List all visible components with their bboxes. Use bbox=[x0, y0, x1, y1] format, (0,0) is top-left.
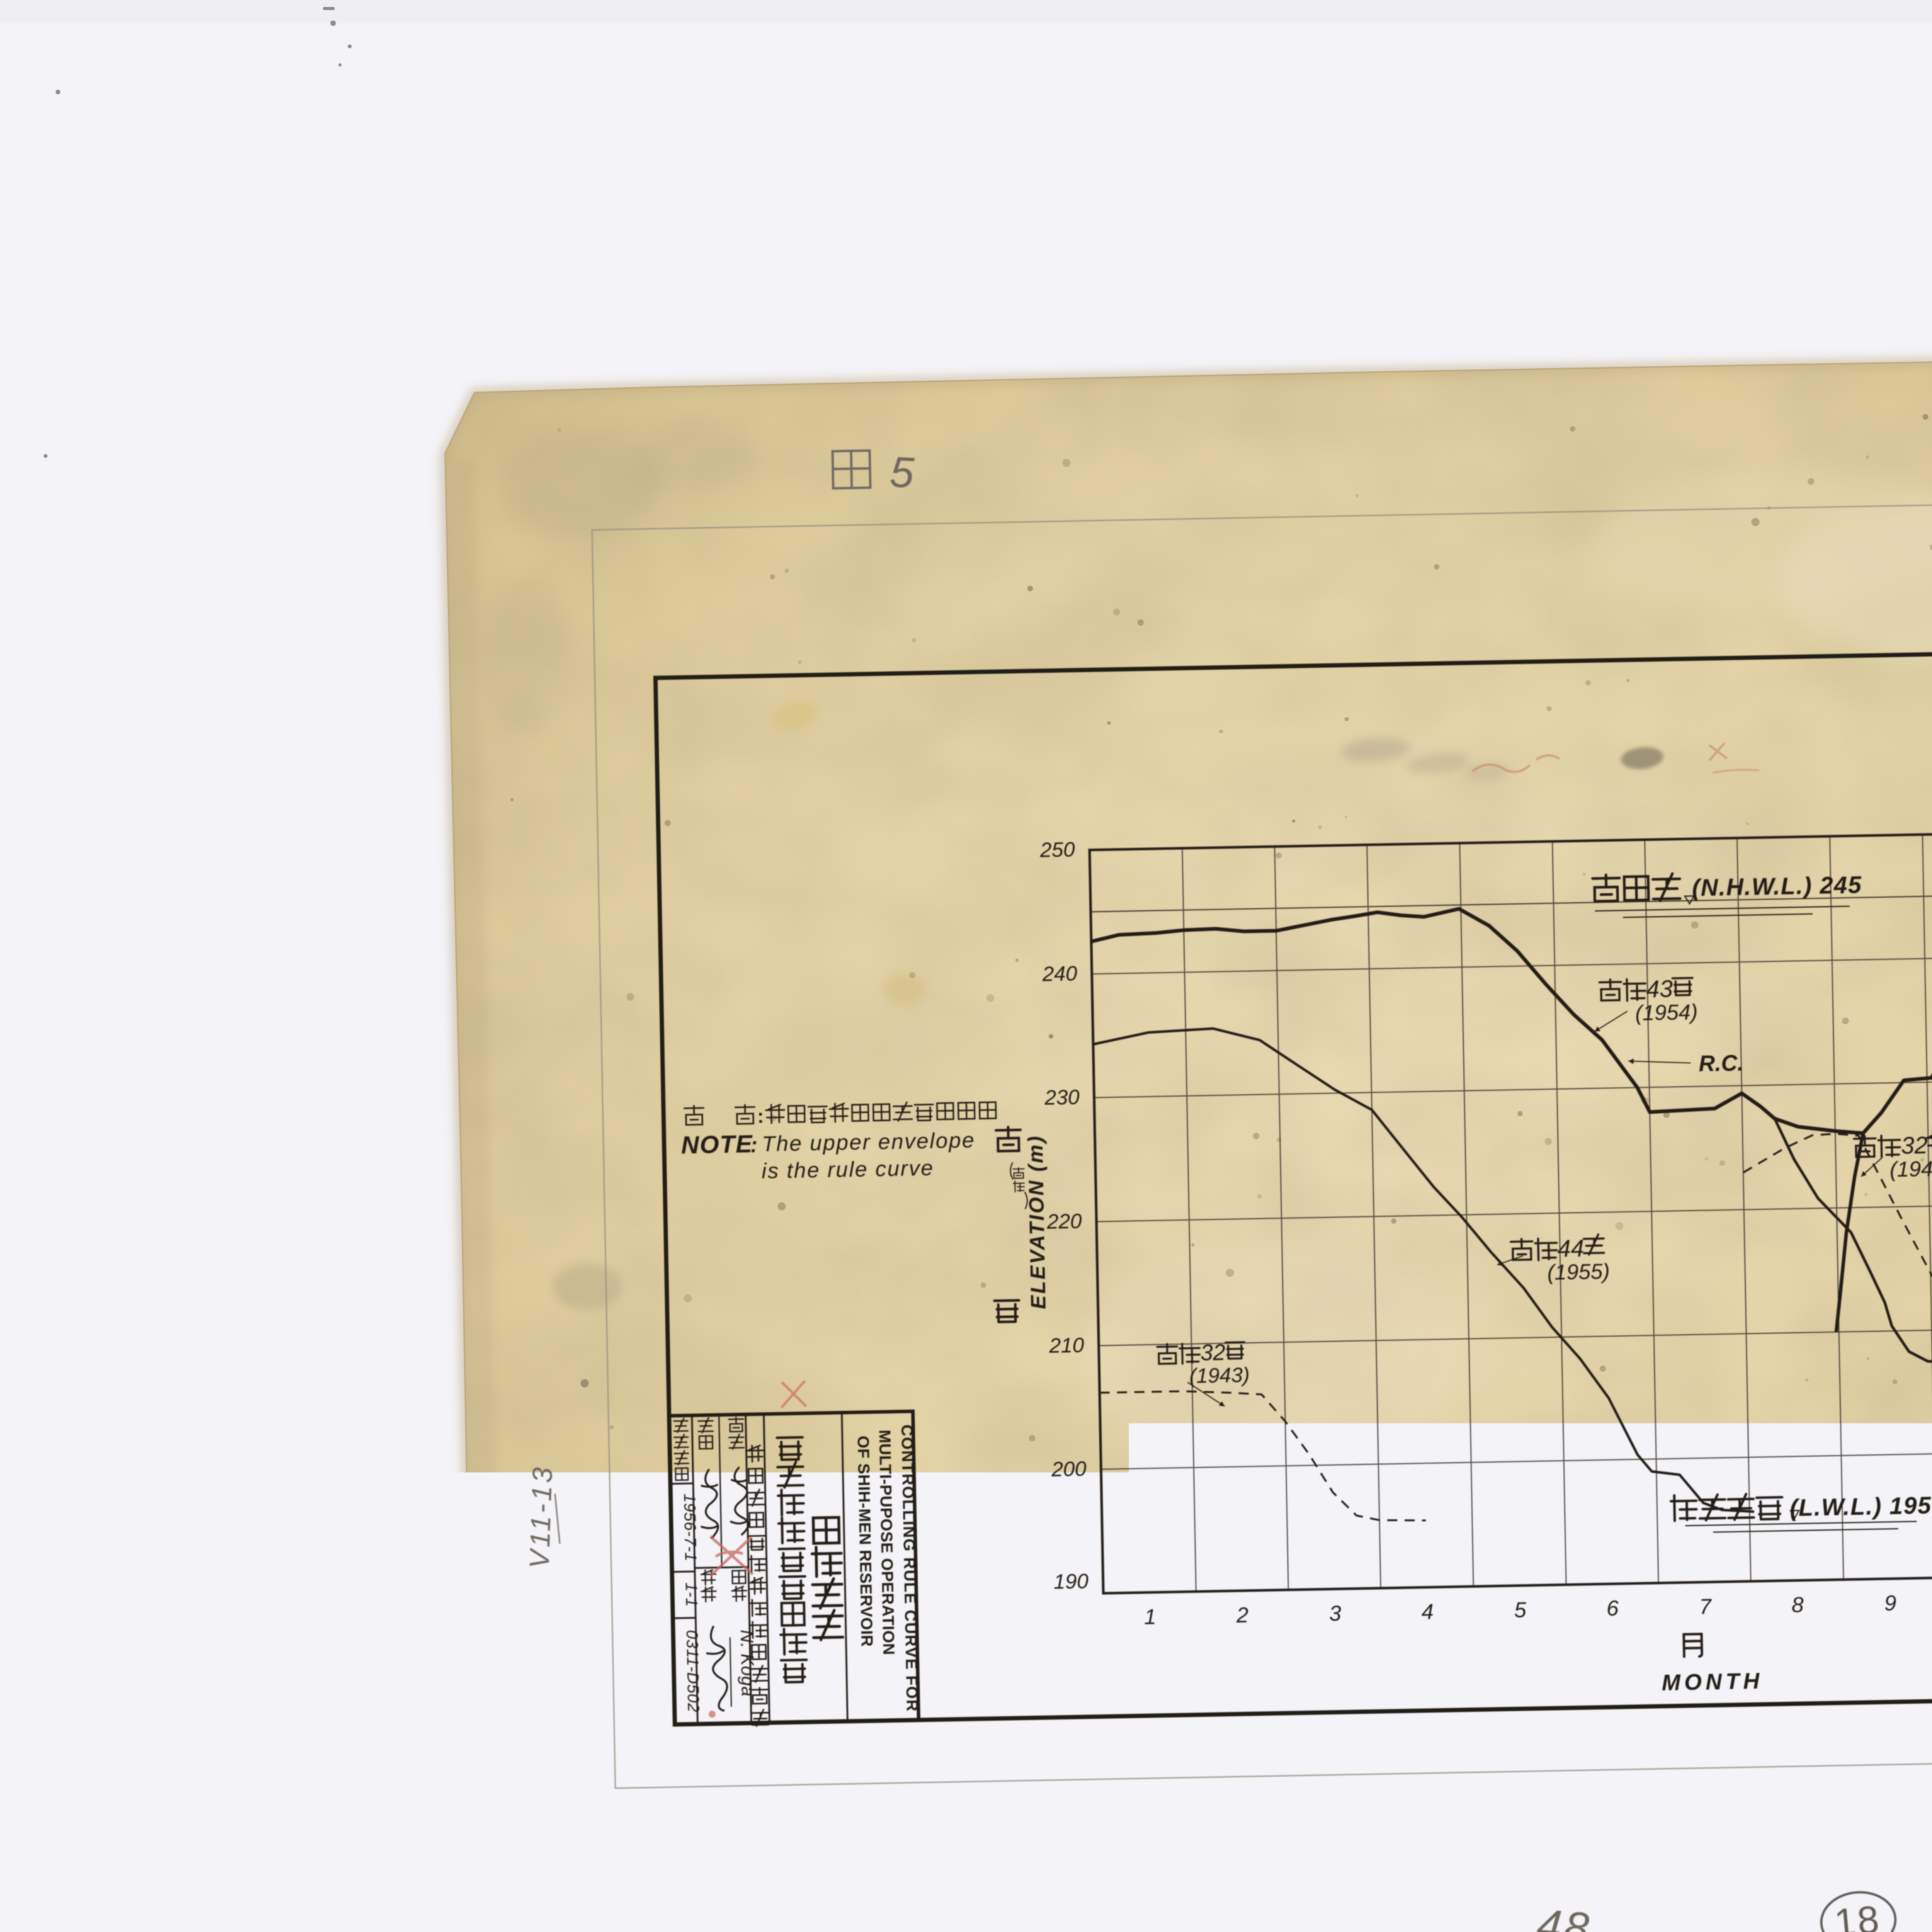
svg-text:The upper envelope: The upper envelope bbox=[762, 1128, 975, 1156]
svg-text::: : bbox=[757, 1105, 764, 1127]
svg-text:32: 32 bbox=[1200, 1340, 1226, 1365]
svg-text:5: 5 bbox=[889, 447, 915, 497]
svg-text:N. Koga: N. Koga bbox=[737, 1629, 758, 1697]
svg-text:(1955): (1955) bbox=[1547, 1259, 1610, 1284]
svg-text:NOTE: NOTE bbox=[681, 1130, 753, 1159]
svg-text:is the rule curve: is the rule curve bbox=[761, 1155, 934, 1183]
svg-text:3: 3 bbox=[1329, 1601, 1341, 1626]
svg-text:210: 210 bbox=[1049, 1333, 1084, 1357]
svg-text:18: 18 bbox=[1833, 1897, 1883, 1932]
svg-text:(1954): (1954) bbox=[1635, 1000, 1698, 1025]
svg-text:1956-7-1: 1956-7-1 bbox=[680, 1493, 700, 1562]
svg-text:240: 240 bbox=[1042, 962, 1077, 986]
svg-text:V11-13: V11-13 bbox=[524, 1464, 558, 1569]
svg-text:32: 32 bbox=[1901, 1132, 1928, 1159]
svg-text:5: 5 bbox=[1514, 1597, 1527, 1622]
svg-text:ELEVATION (m): ELEVATION (m) bbox=[1024, 1134, 1050, 1310]
svg-text:R.C.: R.C. bbox=[1699, 1050, 1744, 1076]
svg-text:MONTH: MONTH bbox=[1662, 1668, 1764, 1696]
svg-text:(1943): (1943) bbox=[1889, 1156, 1932, 1182]
svg-text:0311-D502: 0311-D502 bbox=[683, 1630, 703, 1713]
svg-text:220: 220 bbox=[1046, 1209, 1082, 1233]
svg-text:48: 48 bbox=[1535, 1900, 1593, 1932]
svg-text:4: 4 bbox=[1421, 1599, 1434, 1624]
svg-text:6: 6 bbox=[1606, 1596, 1619, 1621]
svg-text:9: 9 bbox=[1884, 1590, 1896, 1615]
svg-text:1: 1 bbox=[1144, 1604, 1156, 1629]
svg-text:(N.H.W.L.) 245: (N.H.W.L.) 245 bbox=[1692, 872, 1862, 901]
svg-text:44: 44 bbox=[1557, 1235, 1584, 1262]
svg-text:200: 200 bbox=[1051, 1457, 1087, 1481]
svg-text:7: 7 bbox=[1699, 1594, 1712, 1619]
svg-text:1-1: 1-1 bbox=[682, 1582, 701, 1607]
svg-text:190: 190 bbox=[1053, 1570, 1088, 1594]
svg-text:(L.W.L.) 195: (L.W.L.) 195 bbox=[1789, 1492, 1932, 1522]
svg-text:2: 2 bbox=[1236, 1602, 1248, 1627]
svg-text:(1943): (1943) bbox=[1189, 1363, 1250, 1388]
svg-text:230: 230 bbox=[1044, 1085, 1080, 1109]
svg-text::: : bbox=[750, 1133, 758, 1157]
svg-text:250: 250 bbox=[1039, 838, 1075, 862]
svg-text:43: 43 bbox=[1646, 976, 1673, 1003]
svg-text:8: 8 bbox=[1791, 1592, 1804, 1617]
